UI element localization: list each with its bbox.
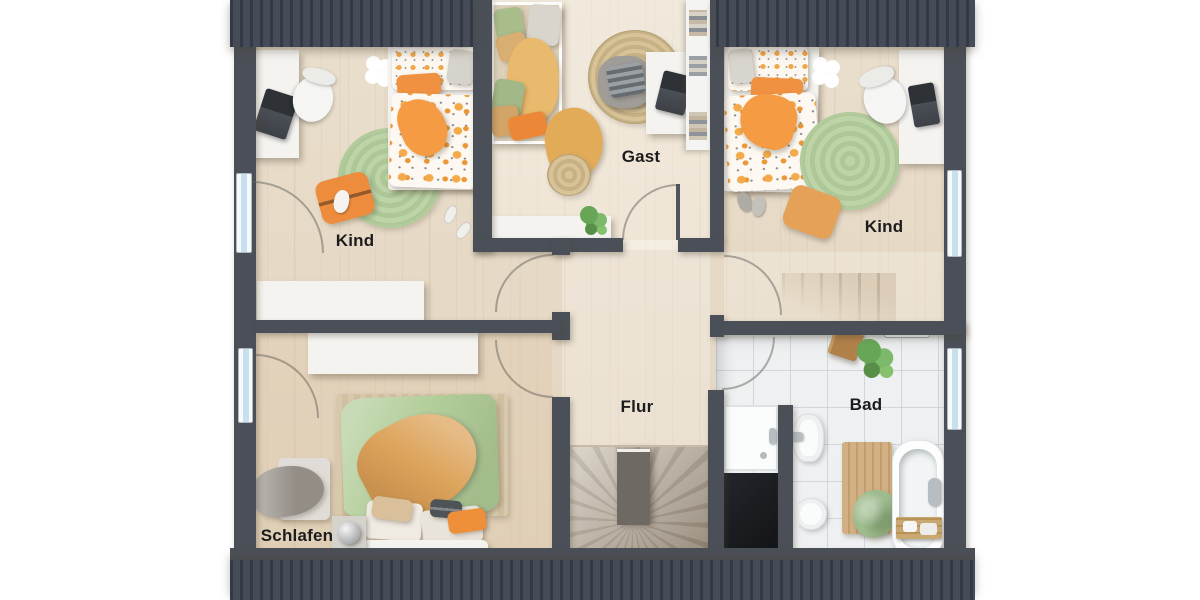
soap-items [920,523,937,535]
pouf [547,154,591,196]
potted-plant [857,339,881,363]
wall-kind-gast [473,0,492,252]
shower-drain [760,452,767,459]
room-label-flur: Flur [621,397,654,417]
wall-left-exterior [234,28,256,550]
room-label-gast: Gast [622,147,661,167]
dark-void [724,473,778,554]
wall-bad-top [722,321,966,335]
books [689,56,707,76]
stair-upper-flight-fade [782,273,896,323]
shower-faucet [769,428,776,444]
wall-center-left-c [552,397,570,560]
flower-rug [813,57,828,72]
stair-center-newel [617,449,650,525]
window [238,348,253,423]
sideboard [257,281,424,322]
window [236,173,252,253]
flower-rug [366,56,381,71]
door-leaf-gast [676,184,680,240]
wall-right-exterior [944,28,966,550]
stairwell [570,447,708,558]
wall-gast-bottom-right [678,238,724,252]
books [689,112,707,140]
window [947,348,962,430]
wall-gast-bottom-left [473,238,623,252]
floorplan-attic: Kind Gast Kind Flur Schlafen Bad [0,0,1200,600]
toilet [795,498,827,530]
wall-center-right-b [708,390,724,560]
room-label-schlafen: Schlafen [261,526,333,546]
room-label-kind-left: Kind [336,231,375,251]
roof-band-top-right [716,0,975,47]
tub-faucet [928,478,941,506]
pillow-gray [727,48,754,84]
room-label-bad: Bad [850,395,883,415]
wall-center-left-a [552,238,570,255]
books [689,10,707,36]
potted-plant [580,206,598,224]
roof-band-top-left [230,0,473,47]
sideboard [308,330,478,374]
window [947,170,962,257]
wall-kind-schlafen [256,320,560,333]
roof-band-bottom [230,560,975,600]
stair-hole-edge [570,445,708,447]
room-label-kind-right: Kind [865,217,904,237]
armchair-pillow-striped [605,61,646,99]
soap-items [903,521,917,532]
pillow-gray [446,48,476,85]
wall-bad-inner-stub [778,405,793,556]
table-lamp [338,522,360,544]
